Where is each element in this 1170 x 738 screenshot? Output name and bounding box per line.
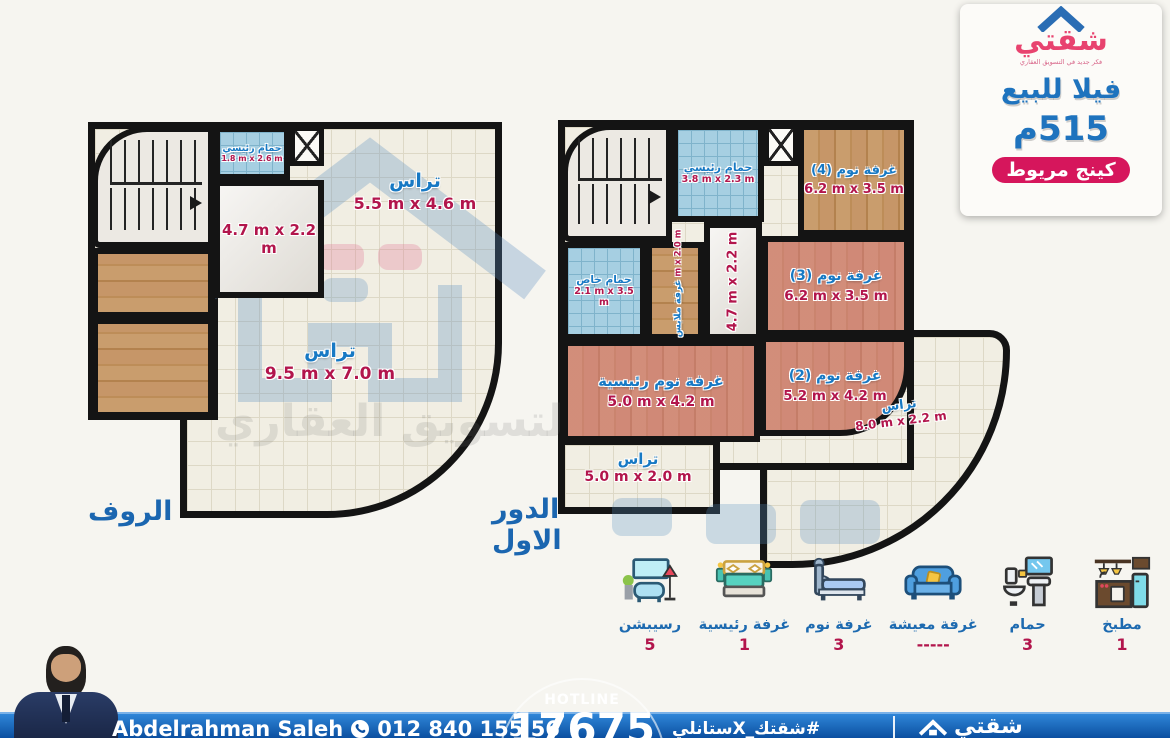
kitchen-icon — [1091, 556, 1153, 614]
first-floor-master-bathroom: حمام رئيسي 3.8 m x 2.3 m — [672, 124, 764, 222]
legend-item-master-bedroom: غرفة رئيسية 1 — [700, 556, 788, 682]
bottom-terrace-label: تراس 5.0 m x 2.0 m — [572, 450, 704, 486]
living-room-icon — [902, 556, 964, 614]
roof-hall: 4.7 m x 2.2 m — [214, 180, 324, 298]
phone-icon — [351, 720, 369, 738]
first-floor-staircase — [562, 124, 672, 242]
roof-staircase — [92, 126, 214, 248]
legend-item-bedroom: غرفة نوم 3 — [795, 556, 883, 682]
agent-photo — [14, 646, 118, 738]
first-floor-plan-title: الدور الاول — [492, 494, 632, 556]
agent-contact-line: Abdelrahman Saleh 012 840 155 56 — [112, 717, 560, 738]
first-floor-corridor: 4.7 m x 2.2 m — [704, 222, 762, 340]
bedroom-4: غرفة نوم (4) 6.2 m x 3.5 m — [798, 124, 910, 236]
master-bedroom: غرفة نوم رئيسية 5.0 m x 4.2 m — [562, 340, 760, 442]
master-bedroom-icon — [713, 556, 775, 614]
legend-item-kitchen: مطبخ 1 — [1078, 556, 1166, 682]
elevator-shaft — [764, 124, 798, 166]
reception-icon — [619, 556, 681, 614]
campaign-hashtag: #شقتك_Xستانلي — [672, 719, 820, 738]
bedroom-icon — [808, 556, 870, 614]
stairs-direction-arrow — [649, 190, 661, 204]
roof-room-lower — [92, 318, 214, 418]
brand-house-icon — [1034, 6, 1088, 32]
brand-tagline: فكر جديد في التسويق العقاري — [1020, 58, 1102, 66]
roof-terrace-big-label: تراس 9.5 m x 7.0 m — [255, 340, 405, 385]
elevator-shaft — [290, 126, 324, 166]
private-bathroom: حمام خاص 2.1 m x 3.5 m — [562, 242, 646, 340]
legend-item-living-room: غرفة معيشة ----- — [889, 556, 977, 682]
agent-phone: 012 840 155 56 — [377, 717, 560, 738]
footer-divider — [893, 716, 895, 738]
poster-canvas: التسويق العقاري حمام رئيسي 1.8 m x 2.6 m… — [0, 0, 1170, 738]
roof-terrace-top-label: تراس 5.5 m x 4.6 m — [350, 170, 480, 214]
agent-name: Abdelrahman Saleh — [112, 717, 343, 738]
brand-house-icon — [918, 718, 948, 736]
footer-brand-logo: شقتي — [918, 714, 1023, 738]
stairs-direction-arrow — [190, 196, 202, 210]
legend-item-bathroom: حمام 3 — [984, 556, 1072, 682]
bedroom-3: غرفة نوم (3) 6.2 m x 3.5 m — [762, 236, 910, 336]
legend-item-reception: رسيبشن 5 — [606, 556, 694, 682]
info-card: شقتي فكر جديد في التسويق العقاري فيلا لل… — [960, 4, 1162, 216]
listing-location-badge: كينج مريوط — [992, 157, 1129, 183]
listing-title: فيلا للبيع — [1001, 74, 1121, 105]
room-legend: رسيبشن 5 غرفة رئيسية 1 — [606, 556, 1166, 682]
roof-room-upper — [92, 248, 214, 318]
roof-master-bathroom: حمام رئيسي 1.8 m x 2.6 m — [214, 126, 290, 180]
bathroom-icon — [997, 556, 1059, 614]
dressing-room: غرفة ملابس 3.5 m x 2.0 m — [646, 242, 704, 340]
listing-area: 515م — [1013, 109, 1109, 149]
roof-plan-title: الروف — [88, 496, 208, 527]
